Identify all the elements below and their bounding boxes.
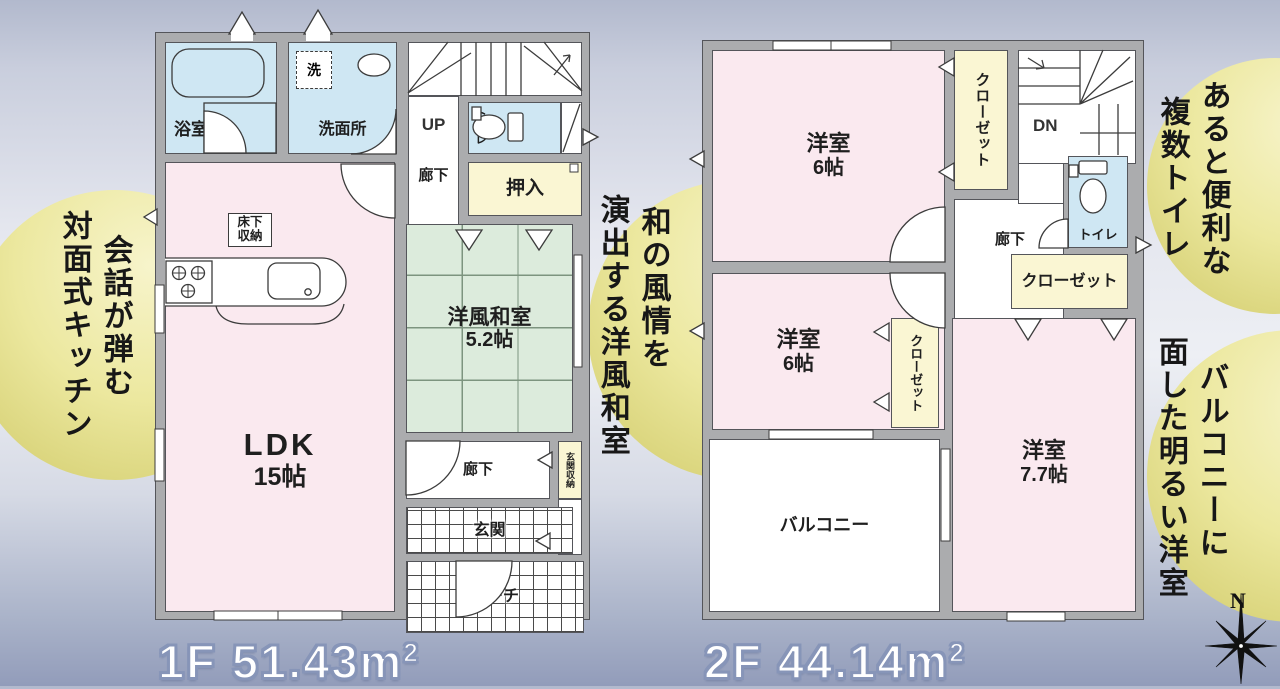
annotation-toilets-line1: あると便利な [1195,80,1230,320]
area-label-1f-sup: 2 [403,637,419,667]
roof-vent-icon [229,12,255,34]
room-bedroom-1-size: 6帖 [813,157,844,179]
room-toilet-1f-label: トイレ [473,107,486,146]
room-bedroom-2-size: 6帖 [783,353,814,375]
underfloor-storage-label: 床下収納 [237,215,262,243]
room-ldk-label: LDK [244,428,317,463]
window-icon [155,429,164,481]
closet-3-label: クローゼット [908,334,923,412]
dn-label-box: DN [1033,117,1058,136]
room-bedroom-2-label: 洋室 [776,328,820,353]
room-genkan-label: 玄関 [473,522,505,540]
closet-2: クローゼット [1011,254,1128,309]
room-washitsu-label: 洋風和室 [448,306,532,330]
compass-rose-icon [1200,610,1280,686]
window-icon [214,611,342,620]
room-ldk-size: 15帖 [254,463,307,491]
room-bathroom-label: 浴室 [174,120,208,139]
room-bedroom-1-label: 洋室 [806,132,850,157]
closet-1-label: クローゼット [973,72,990,168]
room-bedroom-1: 洋室 6帖 [712,50,945,262]
hallway-1f-upper-label: 廊下 [418,168,448,185]
hallway-2f-label: 廊下 [995,232,1025,249]
area-label-2f-sup: 2 [949,637,965,667]
balcony: バルコニー [709,439,940,612]
area-label-2f-text: 2F 44.14m [704,635,949,688]
underfloor-storage-box: 床下収納 [228,213,272,247]
compass: N [1200,588,1280,686]
room-porch-label: ポーチ [471,588,519,606]
floor-plan-2f: 洋室 6帖 クローゼット 廊下 DN トイレ クローゼット 洋室 6帖 クローゼ… [702,40,1144,620]
room-toilet-2f: トイレ [1068,156,1128,248]
hallway-1f-lower: 廊下 [406,441,550,499]
room-bedroom-3-size: 7.7帖 [1020,464,1068,486]
washing-machine-icon: 洗 [296,51,332,89]
annotation-toilets: あると便利な 複数トイレ [1154,80,1230,320]
room-ldk: LDK 15帖 [165,162,395,612]
staircase-down-2f [1018,50,1136,164]
annotation-bedroom-line1: バルコニーに [1193,362,1228,622]
floorplan-page: { "floor1": { "area": {"main": "1F 51.43… [0,0,1280,686]
room-washitsu-size: 5.2帖 [466,329,514,351]
window-icon [574,255,582,367]
balcony-label: バルコニー [780,515,870,535]
opening-arrow-icon [690,151,704,167]
room-washroom-label: 洗面所 [318,121,366,139]
closet-3: クローゼット [891,318,939,428]
floor-plan-1f: 浴室 洗面所 洗 UP 廊下 トイレ 押入 洋風和室 5.2帖 LDK 15帖 … [155,32,590,620]
annotation-kitchen-line1: 会話が弾む [97,234,132,472]
annotation-washitsu: 和の風情を 演出する洋風和室 [594,194,670,480]
opening-arrow-icon [583,129,598,145]
washing-machine-label: 洗 [307,60,321,80]
room-toilet-2f-label: トイレ [1078,228,1117,243]
closet-2-label: クローゼット [1021,273,1117,291]
window-icon [1007,612,1065,621]
up-label: UP [422,115,446,134]
annotation-washitsu-line2: 演出する洋風和室 [594,194,629,480]
annotation-bedroom: バルコニーに 面した明るい洋室 [1152,336,1228,622]
hallway-1f-lower-label: 廊下 [463,462,493,479]
annotation-kitchen-line2: 対面式キッチン [56,210,91,472]
genkan-storage-label: 玄関収納 [565,452,575,488]
roof-vent-icon [304,10,332,34]
staircase-up-1f [408,42,582,96]
dn-label: DN [1033,116,1058,135]
room-genkan: 玄関 [406,507,573,554]
opening-arrow-icon [1136,237,1151,253]
room-oshiire: 押入 [468,162,582,216]
room-washitsu: 洋風和室 5.2帖 [406,224,573,433]
window-icon [773,41,891,50]
room-toilet-1f: トイレ [468,102,561,154]
window-icon [941,449,950,541]
room-bedroom-3: 洋室 7.7帖 [952,318,1136,612]
room-oshiire-label: 押入 [506,178,544,199]
room-porch: ポーチ [406,561,584,633]
annotation-bedroom-line2: 面した明るい洋室 [1152,336,1187,622]
genkan-storage: 玄関収納 [558,441,582,499]
area-label-1f: 1F 51.43m2 [158,634,420,689]
area-label-1f-text: 1F 51.43m [158,635,403,688]
room-bedroom-3-label: 洋室 [1022,439,1066,464]
hallway-2f-connector [1018,164,1064,204]
window-icon [155,285,164,333]
closet-1: クローゼット [954,50,1008,190]
window-icon [769,430,873,439]
annotation-toilets-line2: 複数トイレ [1154,96,1189,320]
room-bathroom: 浴室 [165,42,277,154]
area-label-2f: 2F 44.14m2 [704,634,966,689]
annotation-washitsu-line1: 和の風情を [635,206,670,480]
toilet-door-zone-1f [561,102,582,154]
annotation-kitchen: 会話が弾む 対面式キッチン [56,210,132,472]
